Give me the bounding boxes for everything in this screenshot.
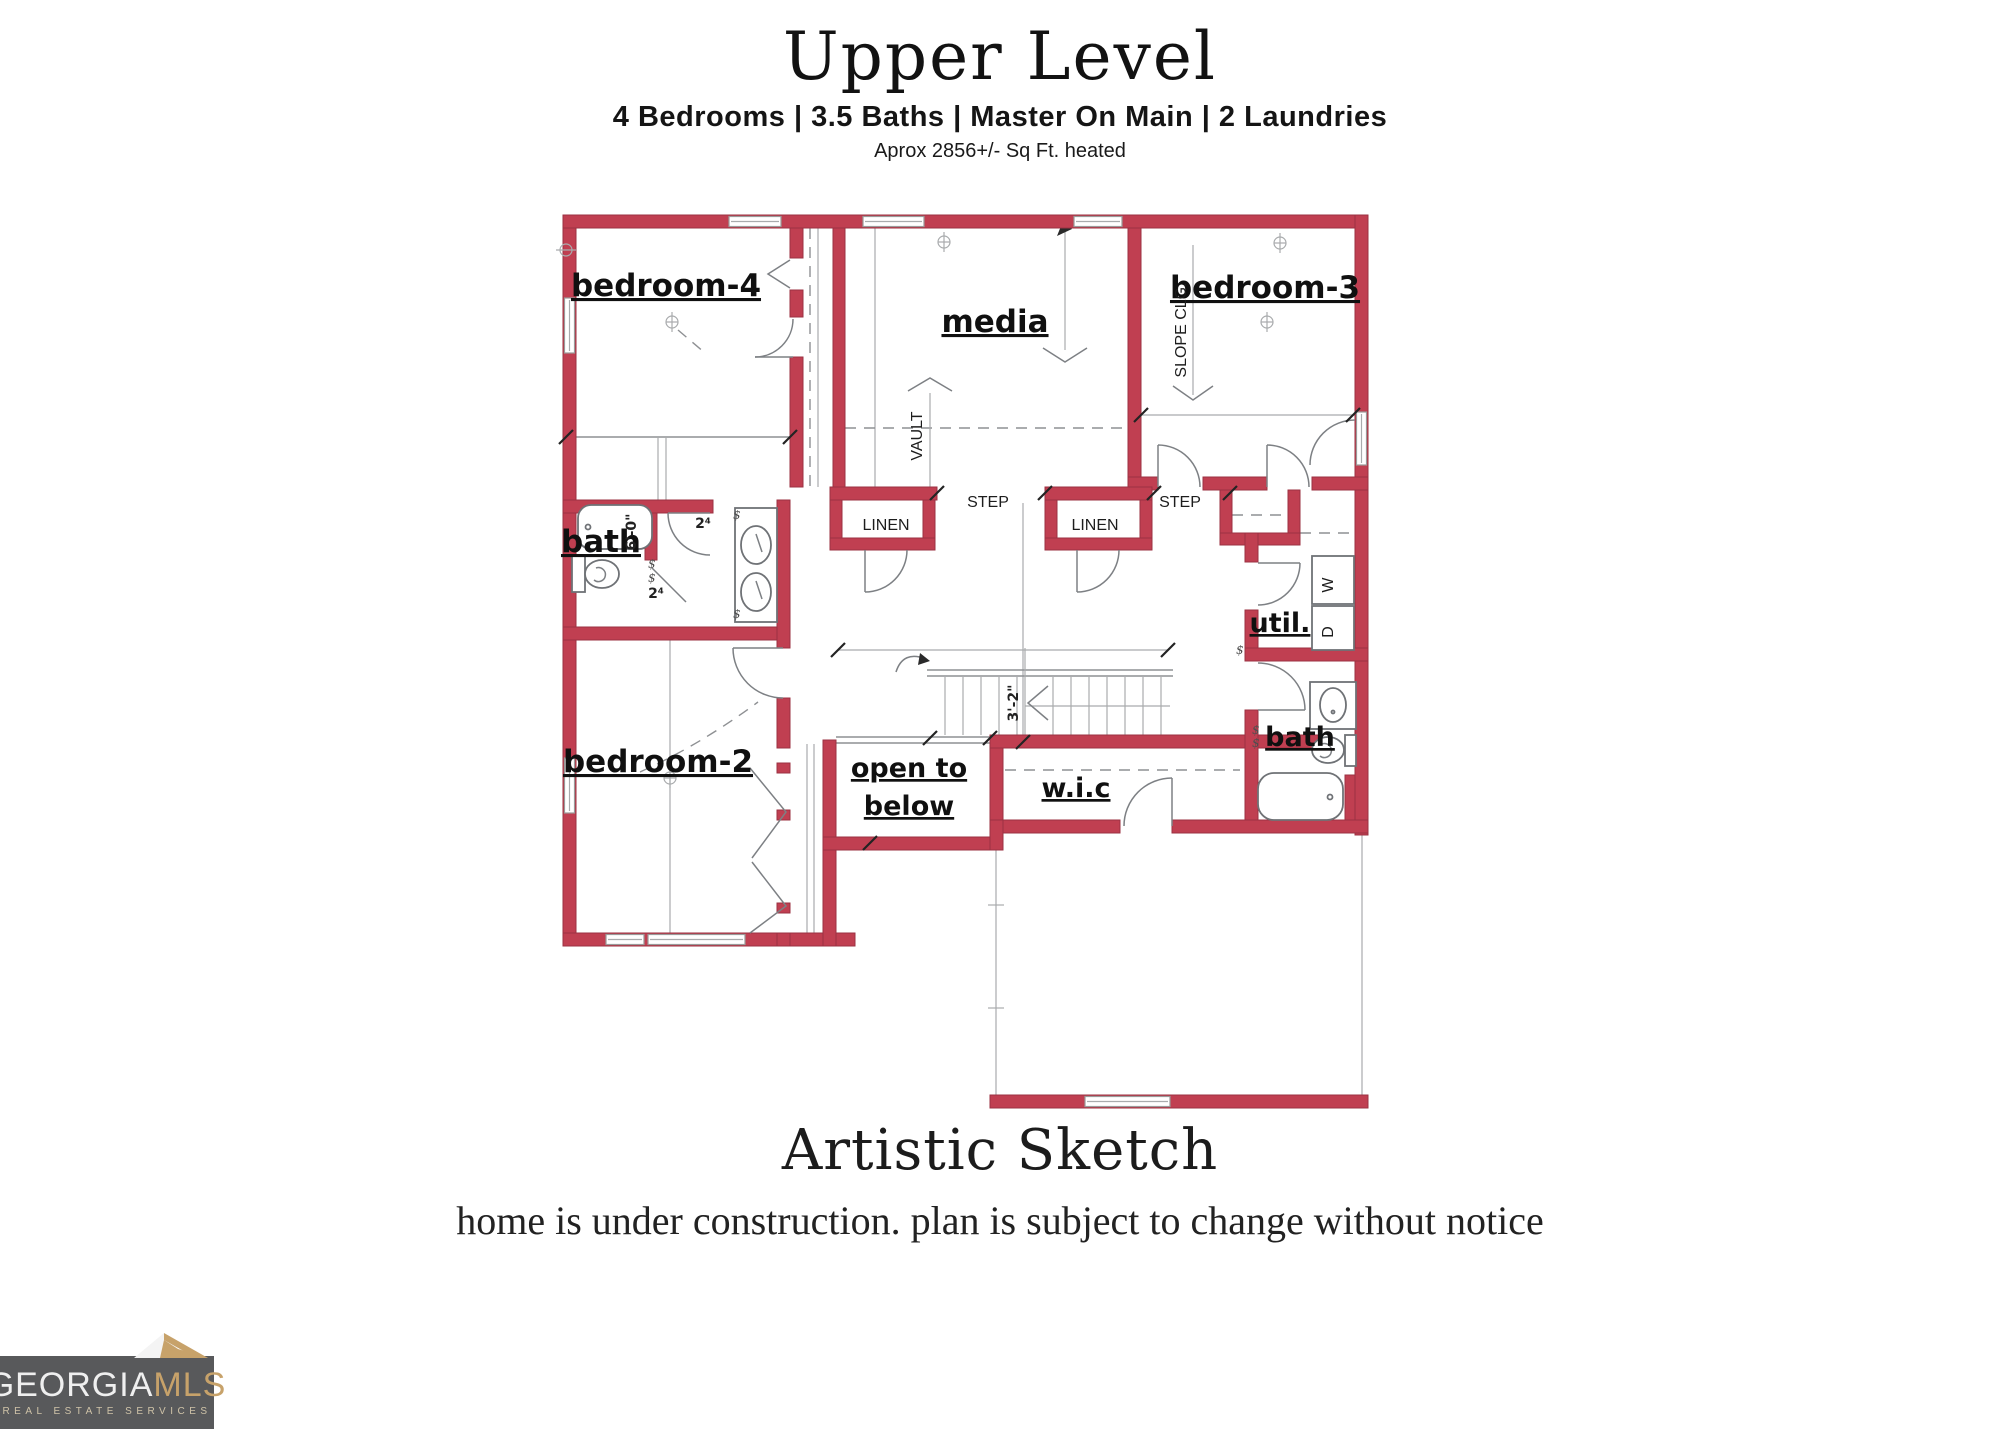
door-bedroom3-2 (1267, 445, 1309, 487)
light-icon (938, 232, 950, 252)
light-icon (666, 312, 678, 332)
label-door-size-1: 2⁴ (695, 516, 711, 532)
window (606, 935, 644, 945)
window (1085, 1097, 1170, 1107)
label-bedroom-2: bedroom-2 (563, 744, 753, 780)
sketch-title: Artistic Sketch (0, 1118, 2000, 1183)
label-open-to-below-1: open to (851, 753, 967, 784)
bifold-door-bedroom4 (768, 260, 790, 288)
label-washer: W (1320, 577, 1337, 593)
disclaimer-text: home is under construction. plan is subj… (0, 1197, 2000, 1244)
label-door-size-2: 2⁴ (648, 586, 664, 602)
label-step-1: STEP (967, 494, 1009, 511)
logo-tagline: REAL ESTATE SERVICES (2, 1406, 211, 1417)
label-media: media (941, 304, 1048, 340)
switch-symbol: $ (733, 508, 741, 522)
logo-wordmark: GEORGIAMLS (0, 1368, 226, 1402)
light-icon (1261, 312, 1273, 332)
door-bath-right (1258, 663, 1305, 710)
label-tub-dim: 6'-0" (624, 514, 640, 551)
georgia-mls-logo: GEORGIAMLS REAL ESTATE SERVICES (0, 1356, 214, 1429)
label-bedroom-4: bedroom-4 (571, 268, 761, 304)
walls (563, 215, 1368, 1108)
window (565, 298, 575, 353)
window (863, 217, 924, 227)
label-step-2: STEP (1159, 494, 1201, 511)
logo-georgia-text: GEORGIA (0, 1366, 153, 1404)
window (648, 935, 745, 945)
window (729, 217, 781, 227)
logo-roof-icon (116, 1328, 212, 1362)
switch-symbol: $ (648, 557, 656, 571)
label-wic: w.i.c (1042, 773, 1111, 804)
label-util: util. (1250, 608, 1311, 639)
door-linen1 (865, 550, 907, 592)
bathtub-right (1258, 773, 1343, 820)
door-bedroom3-1 (1158, 445, 1200, 487)
label-stair-width: 3'-2" (1006, 685, 1022, 722)
switch-symbol: $ (1252, 736, 1260, 750)
window (1357, 412, 1367, 465)
footer: Artistic Sketch home is under constructi… (0, 1118, 2000, 1244)
flyer-page: Upper Level 4 Bedrooms | 3.5 Baths | Mas… (0, 0, 2000, 1429)
switch-symbol: $ (1236, 643, 1244, 657)
label-open-to-below-2: below (864, 791, 954, 822)
vanity-double-sink (735, 508, 777, 622)
bifold-closet-bedroom2-2 (750, 862, 786, 933)
label-bedroom-3: bedroom-3 (1170, 270, 1360, 306)
door-linen2 (1077, 550, 1119, 592)
label-linen-2: LINEN (1071, 517, 1118, 534)
door-bedroom3-right (1310, 420, 1355, 465)
logo-mls-text: MLS (153, 1366, 226, 1404)
toilet-left (572, 556, 619, 592)
detail-lines (576, 221, 1362, 1095)
label-linen-1: LINEN (862, 517, 909, 534)
window (1074, 217, 1122, 227)
label-bath-right: bath (1265, 722, 1335, 753)
switch-symbol: $ (648, 571, 656, 585)
switch-symbol: $ (1252, 723, 1260, 737)
door-wic (1124, 778, 1172, 826)
switch-symbol: $ (733, 607, 741, 621)
label-slope-clg: SLOPE CLG. (1173, 282, 1190, 377)
label-dryer: D (1320, 626, 1337, 638)
door-bedroom4 (755, 319, 793, 357)
label-vault: VAULT (909, 411, 926, 460)
light-icon (1274, 233, 1286, 253)
staircase (896, 648, 1173, 742)
door-util (1258, 563, 1300, 605)
door-bedroom2 (733, 648, 783, 698)
